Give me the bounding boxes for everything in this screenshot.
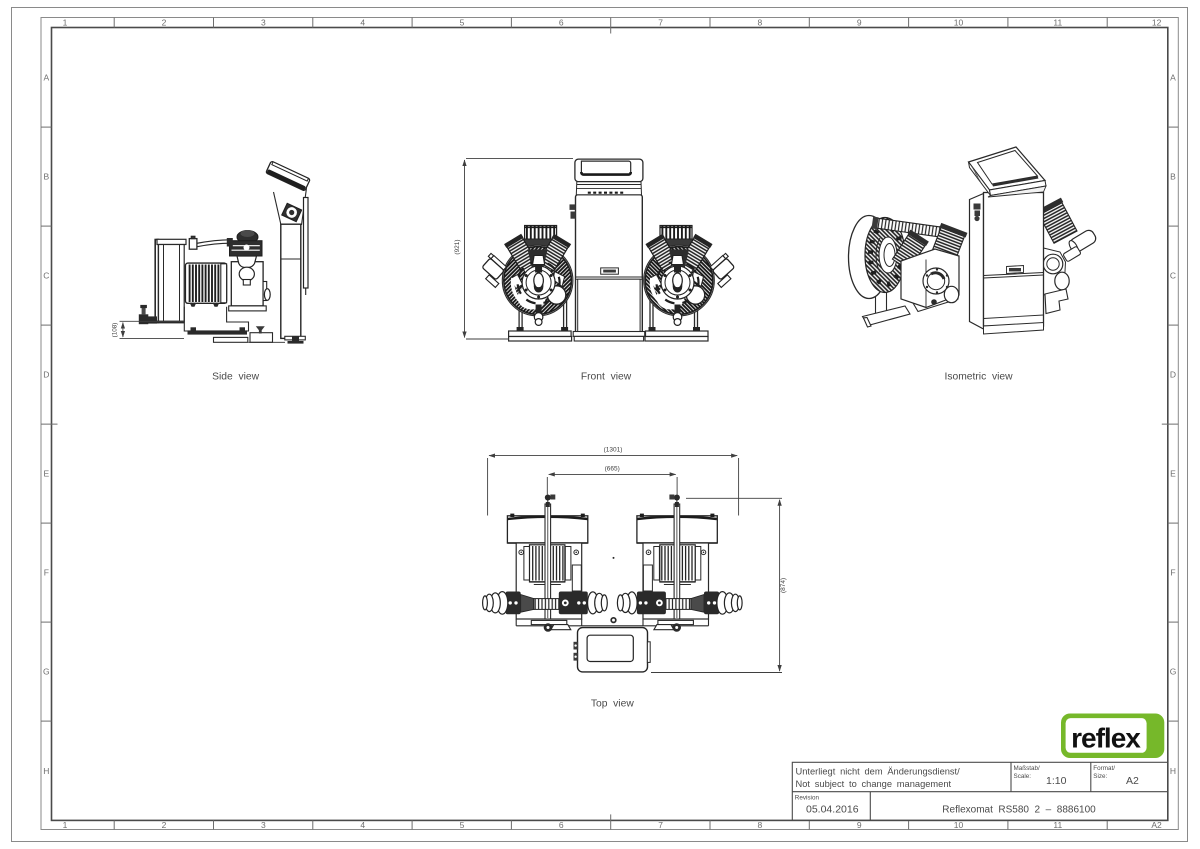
svg-text:A2: A2 [1126,775,1139,787]
svg-text:B: B [1170,172,1176,182]
svg-text:1:10: 1:10 [1046,775,1067,787]
svg-text:C: C [1170,271,1176,281]
svg-text:3: 3 [261,820,266,830]
svg-text:4: 4 [360,820,365,830]
svg-text:Isometric view: Isometric view [944,372,1013,383]
svg-text:G: G [43,667,50,677]
svg-text:Not subject to change manageme: Not subject to change management [796,779,952,789]
svg-text:(921): (921) [454,239,461,254]
svg-text:8: 8 [758,18,763,28]
svg-text:(108): (108) [112,323,119,338]
svg-text:5: 5 [460,820,465,830]
svg-text:6: 6 [559,18,564,28]
svg-text:C: C [43,271,49,281]
svg-text:1: 1 [63,820,68,830]
svg-text:H: H [43,766,49,776]
svg-text:A2: A2 [1151,820,1162,830]
svg-text:(665): (665) [605,465,620,472]
svg-text:Reflexomat RS580 2 – 88861: Reflexomat RS580 2 – 8886100 [942,805,1096,816]
svg-text:Revision: Revision [795,795,820,802]
svg-text:7: 7 [658,820,663,830]
svg-text:Size:: Size: [1093,773,1107,780]
svg-text:10: 10 [954,18,964,28]
svg-text:6: 6 [559,820,564,830]
svg-text:05.04.2016: 05.04.2016 [806,804,859,816]
svg-text:11: 11 [1053,820,1062,830]
svg-text:7: 7 [658,18,663,28]
svg-text:Maßstab/: Maßstab/ [1014,765,1040,772]
svg-text:E: E [43,469,49,479]
svg-text:D: D [1170,370,1176,380]
svg-text:2: 2 [162,18,167,28]
svg-text:E: E [1170,469,1176,479]
svg-text:F: F [1170,568,1175,578]
svg-text:G: G [1170,667,1177,677]
svg-text:(874): (874) [780,578,787,593]
svg-text:A: A [43,72,49,82]
svg-text:(1301): (1301) [604,447,623,454]
svg-text:Unterliegt nicht dem Änderungs: Unterliegt nicht dem Änderungsdienst/ [796,767,961,777]
svg-text:9: 9 [857,18,862,28]
svg-text:Scale:: Scale: [1014,773,1032,780]
svg-text:2: 2 [162,820,167,830]
svg-text:8: 8 [758,820,763,830]
svg-text:Side view: Side view [212,372,259,383]
svg-text:9: 9 [857,820,862,830]
svg-text:4: 4 [360,18,365,28]
svg-text:3: 3 [261,18,266,28]
svg-text:10: 10 [954,820,964,830]
svg-text:B: B [43,172,49,182]
svg-text:Top view: Top view [591,699,634,710]
svg-text:12: 12 [1152,18,1162,28]
svg-text:11: 11 [1053,18,1062,28]
svg-text:Front view: Front view [581,372,632,383]
svg-text:F: F [44,568,49,578]
svg-text:5: 5 [460,18,465,28]
svg-text:1: 1 [63,18,68,28]
svg-text:H: H [1170,766,1176,776]
svg-text:Format/: Format/ [1093,765,1115,772]
svg-text:A: A [1170,72,1176,82]
svg-text:D: D [43,370,49,380]
svg-text:reflex: reflex [1071,723,1141,754]
